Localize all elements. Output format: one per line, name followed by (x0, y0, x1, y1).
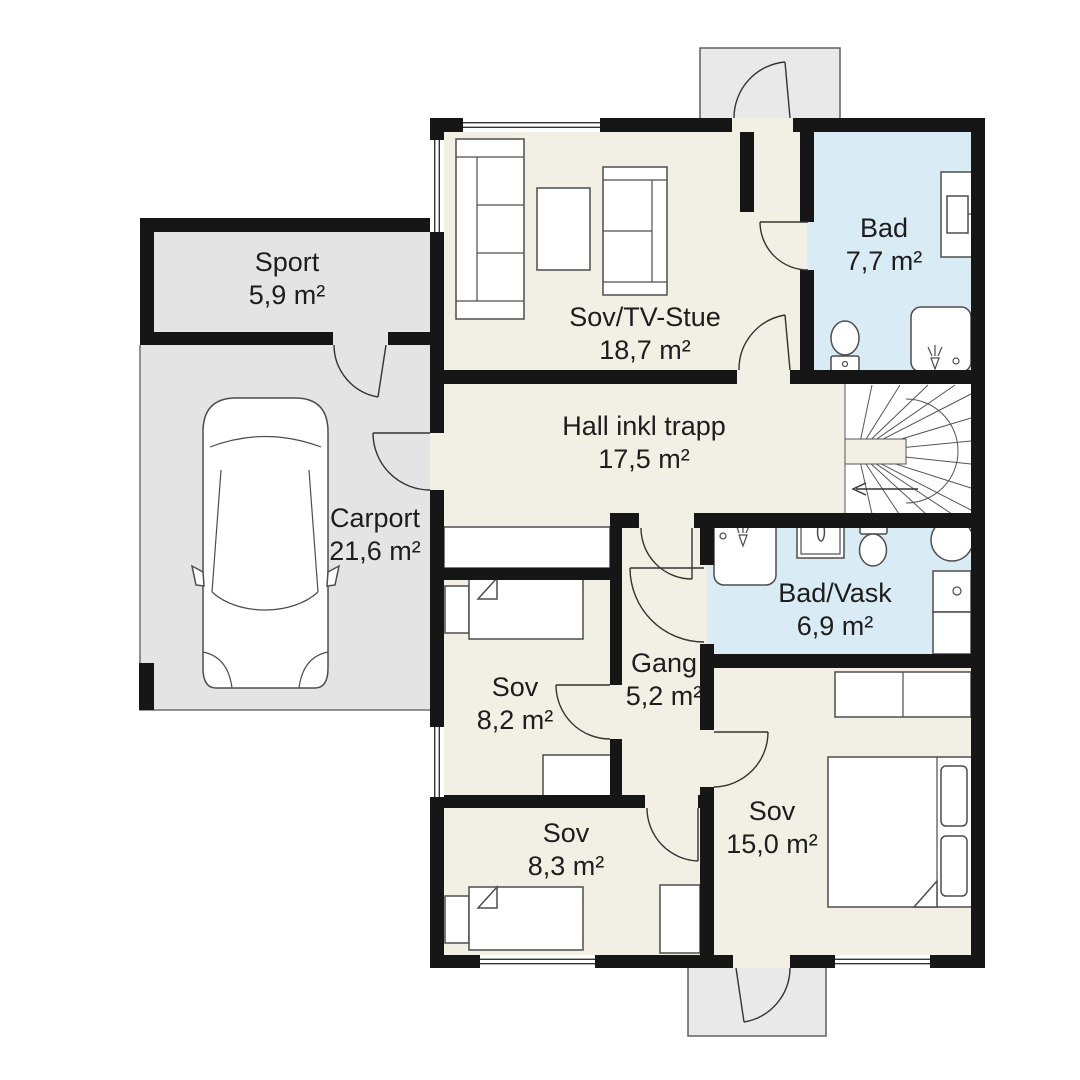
bedroom-150-furniture (828, 672, 975, 907)
nightstand (445, 586, 469, 633)
window-tv-room-top (463, 118, 600, 132)
room-label-bedroom-82: Sov 8,2 m² (477, 671, 554, 737)
entry-porch-bottom (688, 966, 826, 1036)
stair-landing (845, 439, 906, 464)
floor-plan: Sport 5,9 m² Carport 21,6 m² Sov/TV-Stue… (0, 0, 1080, 1080)
carport-post (139, 663, 154, 710)
bedroom-83-furniture (445, 885, 700, 953)
nightstand-2 (445, 896, 469, 943)
room-name: Gang (626, 647, 703, 680)
wardrobe-2 (660, 885, 700, 953)
pillow (941, 836, 967, 896)
shower (911, 307, 971, 372)
double-bed (828, 757, 975, 907)
room-label-sport: Sport 5,9 m² (249, 246, 326, 312)
room-area: 8,2 m² (477, 704, 554, 737)
room-area: 5,9 m² (249, 279, 326, 312)
window-bedroom-150-bottom (835, 955, 930, 968)
room-name: Sov (726, 795, 818, 828)
room-label-hall: Hall inkl trapp 17,5 m² (562, 410, 726, 476)
sofa-2-seat (603, 167, 667, 295)
dresser (543, 755, 613, 798)
room-label-bath-laundry: Bad/Vask 6,9 m² (778, 577, 892, 643)
room-area: 5,2 m² (626, 680, 703, 713)
room-area: 7,7 m² (846, 245, 923, 278)
room-name: Bad (846, 212, 923, 245)
room-label-bathroom: Bad 7,7 m² (846, 212, 923, 278)
room-name: Hall inkl trapp (562, 410, 726, 443)
shower-2 (714, 518, 776, 585)
toilet (831, 321, 859, 372)
room-name: Bad/Vask (778, 577, 892, 610)
window-bedroom-83-bottom (480, 955, 595, 968)
room-label-carport: Carport 21,6 m² (329, 502, 421, 568)
single-bed-2 (469, 887, 583, 950)
single-bed (469, 578, 583, 639)
room-label-gang: Gang 5,2 m² (626, 647, 703, 713)
room-name: Sov/TV-Stue (569, 301, 721, 334)
room-name: Carport (329, 502, 421, 535)
entry-porch-top (700, 48, 840, 120)
coffee-table (537, 188, 590, 270)
room-area: 8,3 m² (528, 850, 605, 883)
room-area: 6,9 m² (778, 610, 892, 643)
pillow (941, 766, 967, 826)
window-bedroom-82-left (430, 727, 444, 797)
car (192, 398, 339, 688)
room-area: 21,6 m² (329, 535, 421, 568)
room-name: Sport (249, 246, 326, 279)
floor-plan-canvas (0, 0, 1080, 1080)
washing-machine (933, 571, 971, 612)
room-area: 15,0 m² (726, 828, 818, 861)
laundry-unit (933, 612, 971, 654)
room-name: Sov (477, 671, 554, 704)
room-area: 17,5 m² (562, 443, 726, 476)
window-tv-room-left (430, 140, 444, 232)
room-name: Sov (528, 817, 605, 850)
room-label-bedroom-150: Sov 15,0 m² (726, 795, 818, 861)
hall-wardrobe (444, 527, 610, 568)
room-area: 18,7 m² (569, 334, 721, 367)
sofa-3-seat (456, 139, 524, 319)
room-label-bedroom-83: Sov 8,3 m² (528, 817, 605, 883)
room-label-tv-room: Sov/TV-Stue 18,7 m² (569, 301, 721, 367)
